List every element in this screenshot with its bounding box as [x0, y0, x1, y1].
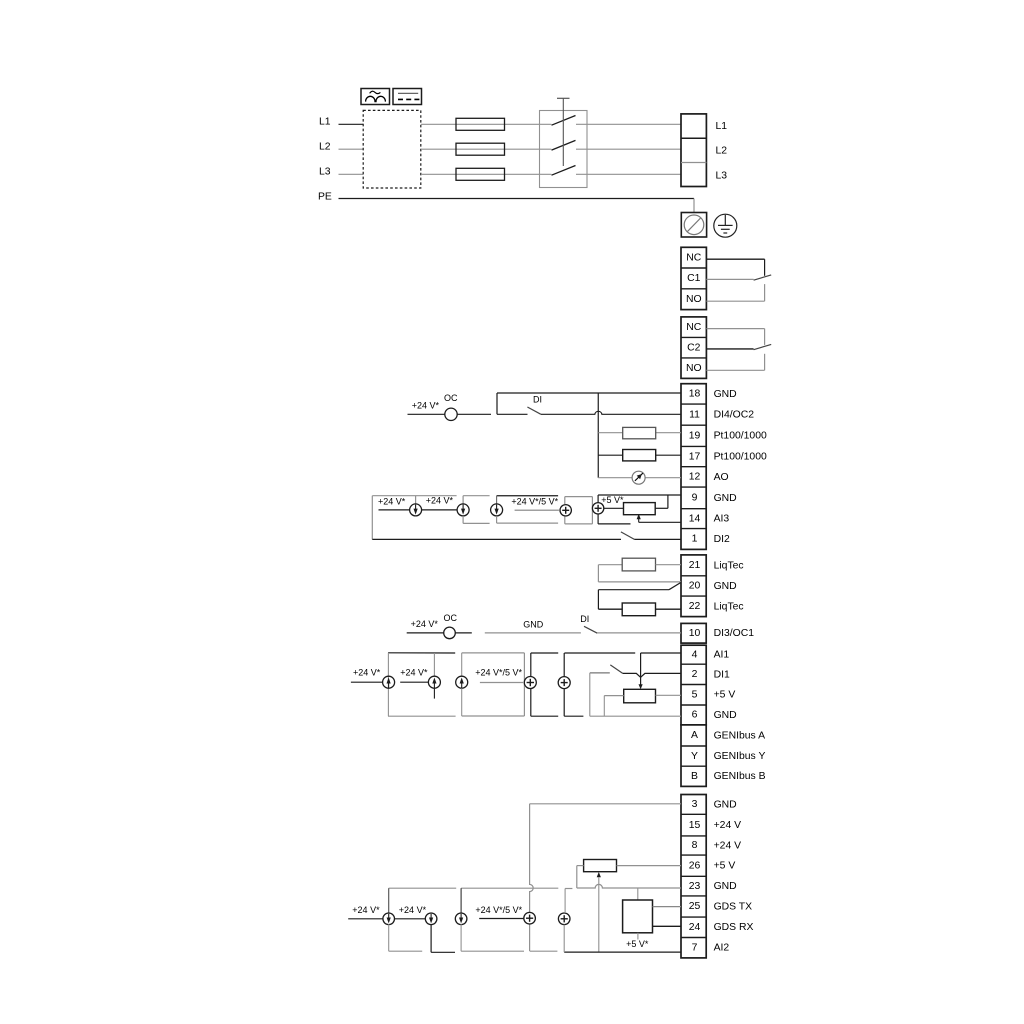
svg-text:AI3: AI3: [714, 514, 730, 525]
svg-text:11: 11: [689, 409, 700, 420]
svg-text:8: 8: [692, 840, 698, 851]
svg-text:24: 24: [689, 922, 701, 933]
svg-text:GENIbus Y: GENIbus Y: [714, 751, 766, 762]
svg-text:5: 5: [692, 689, 698, 700]
svg-text:+24 V*: +24 V*: [353, 668, 381, 678]
svg-text:+24 V*/5 V*: +24 V*/5 V*: [511, 496, 558, 506]
svg-text:C2: C2: [687, 342, 701, 353]
svg-text:L3: L3: [319, 167, 331, 178]
svg-text:1: 1: [692, 534, 698, 545]
svg-text:L1: L1: [319, 117, 331, 128]
svg-text:25: 25: [689, 901, 701, 912]
svg-text:GDS TX: GDS TX: [714, 901, 753, 912]
svg-text:Y: Y: [691, 751, 698, 762]
svg-text:7: 7: [692, 942, 698, 953]
svg-text:NC: NC: [686, 252, 702, 263]
svg-text:LiqTec: LiqTec: [714, 560, 744, 571]
svg-text:3: 3: [692, 799, 698, 810]
svg-text:B: B: [691, 771, 698, 782]
svg-text:OC: OC: [444, 613, 458, 623]
svg-text:GND: GND: [714, 581, 737, 592]
svg-text:+24 V: +24 V: [714, 840, 742, 851]
svg-text:Pt100/1000: Pt100/1000: [714, 451, 767, 462]
svg-text:NC: NC: [686, 322, 702, 333]
svg-text:18: 18: [689, 389, 701, 400]
svg-text:+24 V: +24 V: [714, 820, 742, 831]
svg-text:Pt100/1000: Pt100/1000: [714, 431, 767, 442]
svg-text:+24 V*/5 V*: +24 V*/5 V*: [475, 905, 522, 915]
svg-text:PE: PE: [318, 192, 332, 203]
svg-text:GND: GND: [714, 799, 737, 810]
svg-text:AI2: AI2: [714, 943, 730, 954]
svg-text:L1: L1: [716, 121, 728, 132]
svg-text:GND: GND: [523, 619, 544, 629]
svg-text:15: 15: [689, 820, 701, 831]
svg-text:+24 V*: +24 V*: [411, 619, 439, 629]
svg-text:9: 9: [692, 493, 698, 504]
svg-text:20: 20: [689, 581, 701, 592]
svg-text:GND: GND: [714, 881, 737, 892]
svg-text:GENIbus A: GENIbus A: [714, 730, 765, 741]
svg-text:+24 V*/5 V*: +24 V*/5 V*: [475, 668, 522, 678]
svg-text:GND: GND: [714, 710, 737, 721]
svg-text:OC: OC: [444, 393, 458, 403]
svg-text:L3: L3: [716, 170, 728, 181]
svg-text:L2: L2: [716, 145, 728, 156]
svg-text:+24 V*: +24 V*: [378, 496, 406, 506]
svg-text:DI: DI: [533, 395, 542, 405]
svg-text:+24 V*: +24 V*: [412, 400, 440, 410]
svg-text:A: A: [691, 730, 698, 741]
svg-text:DI3/OC1: DI3/OC1: [714, 628, 755, 639]
svg-text:10: 10: [689, 628, 701, 639]
svg-text:+24 V*: +24 V*: [400, 668, 428, 678]
svg-text:DI4/OC2: DI4/OC2: [714, 410, 755, 421]
svg-text:NO: NO: [686, 294, 702, 305]
svg-text:+24 V*: +24 V*: [426, 496, 454, 506]
svg-text:14: 14: [689, 513, 701, 524]
svg-text:GDS RX: GDS RX: [714, 922, 754, 933]
svg-text:17: 17: [689, 451, 701, 462]
svg-text:AI1: AI1: [714, 650, 730, 661]
svg-text:23: 23: [689, 881, 701, 892]
svg-text:L2: L2: [319, 142, 331, 153]
svg-text:6: 6: [692, 710, 698, 721]
svg-text:+24 V*: +24 V*: [352, 905, 380, 915]
svg-text:21: 21: [689, 560, 701, 571]
svg-text:26: 26: [689, 860, 701, 871]
svg-text:12: 12: [689, 472, 701, 483]
svg-text:C1: C1: [687, 273, 701, 284]
svg-text:DI1: DI1: [714, 669, 730, 680]
svg-text:AO: AO: [714, 472, 729, 483]
svg-text:GENIbus B: GENIbus B: [714, 771, 766, 782]
svg-text:NO: NO: [686, 363, 702, 374]
svg-text:DI2: DI2: [714, 534, 730, 545]
svg-text:+5 V: +5 V: [714, 861, 736, 872]
svg-text:LiqTec: LiqTec: [714, 601, 744, 612]
svg-text:+5 V*: +5 V*: [601, 495, 624, 505]
svg-text:GND: GND: [714, 493, 737, 504]
svg-text:4: 4: [692, 649, 698, 660]
svg-text:+5 V*: +5 V*: [626, 939, 649, 949]
svg-text:19: 19: [689, 431, 701, 442]
svg-text:DI: DI: [580, 614, 589, 624]
svg-text:22: 22: [689, 601, 701, 612]
svg-text:+5 V: +5 V: [714, 690, 736, 701]
svg-text:+24 V*: +24 V*: [399, 905, 427, 915]
svg-text:GND: GND: [714, 389, 737, 400]
svg-text:2: 2: [692, 669, 698, 680]
